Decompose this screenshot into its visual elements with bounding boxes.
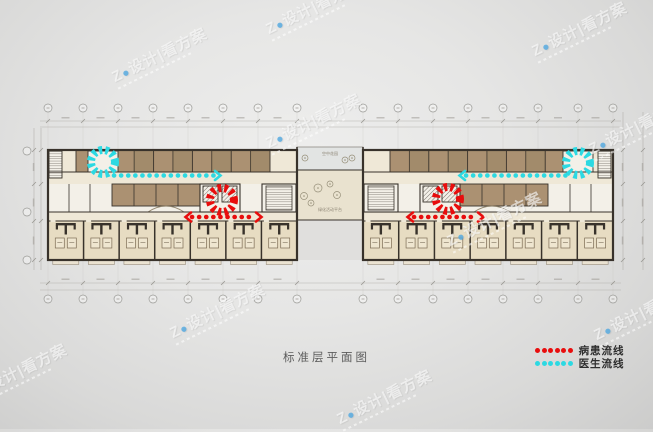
patient-flow-dots-icon — [535, 348, 575, 353]
atrium-label: 绿化活动平台 — [318, 206, 342, 212]
doctor-flow-dots-icon — [535, 361, 575, 366]
floor-plan-page: 空中花园绿化活动平台 标准层平面图 病患流线 医生流线 Z●设计|看方案Z●设计… — [0, 0, 653, 429]
legend: 病患流线 医生流线 — [535, 344, 625, 371]
legend-label-doctor-flow: 医生流线 — [579, 356, 625, 371]
left-wing — [48, 149, 297, 264]
central-connector: 空中花园绿化活动平台 — [297, 147, 363, 260]
terrace-label: 空中花园 — [322, 150, 338, 156]
right-wing — [363, 149, 613, 264]
legend-item-doctor-flow: 医生流线 — [535, 358, 625, 370]
legend-item-patient-flow: 病患流线 — [535, 344, 625, 356]
